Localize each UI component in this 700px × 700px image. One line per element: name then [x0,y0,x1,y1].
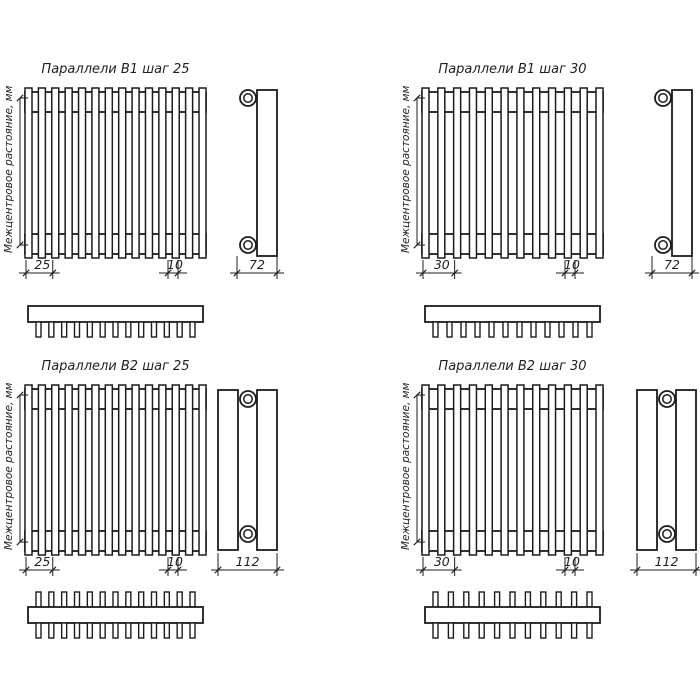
drawing-sheet: 25107230107225101123010112 Параллели B1 … [0,0,700,700]
center-distance-label: Межцентровое растояние, мм [2,93,16,253]
step-dimension: 25 [19,554,60,576]
center-distance-label: Межцентровое растояние, мм [2,390,16,550]
front-view [25,88,206,258]
depth-dimension-value: 72 [249,257,265,272]
tube-width-dimension: 10 [556,257,584,279]
quadrant-title-b2-30: Параллели B2 шаг 30 [422,359,603,374]
step-dimension-value: 25 [34,554,50,569]
depth-dimension: 112 [630,553,700,576]
side-view [240,90,277,256]
side-view [218,390,277,550]
quadrant-b2-step-25: 2510112 [17,385,284,638]
depth-dimension-value: 112 [236,554,260,569]
depth-dimension: 112 [211,553,284,576]
tube-width-dimension: 10 [556,554,584,576]
step-dimension: 30 [416,554,462,576]
center-distance-label: Межцентровое растояние, мм [399,93,413,253]
quadrant-b1-step-30: 301072 [414,88,699,337]
step-dimension-value: 25 [34,257,50,272]
quadrant-title-b1-25: Параллели B1 шаг 25 [25,62,206,77]
depth-dimension: 72 [230,256,284,279]
depth-dimension: 72 [645,256,699,279]
plan-view [28,592,203,638]
tube-width-dimension-value: 10 [564,554,580,569]
front-view [422,385,603,555]
quadrant-b2-step-30: 3010112 [414,385,700,638]
front-view [422,88,603,258]
quadrant-title-b2-25: Параллели B2 шаг 25 [25,359,206,374]
step-dimension: 25 [19,257,60,279]
step-dimension-value: 30 [434,257,450,272]
side-view [655,90,692,256]
depth-dimension-value: 112 [655,554,679,569]
radiator-technical-drawing: 25107230107225101123010112 [0,0,700,700]
step-dimension: 30 [416,257,462,279]
plan-view [425,592,600,638]
quadrant-b1-step-25: 251072 [17,88,284,337]
tube-width-dimension: 10 [159,554,187,576]
center-distance-label: Межцентровое растояние, мм [399,390,413,550]
tube-width-dimension-value: 10 [167,554,183,569]
tube-width-dimension: 10 [159,257,187,279]
plan-view [28,306,203,337]
depth-dimension-value: 72 [664,257,680,272]
tube-width-dimension-value: 10 [167,257,183,272]
front-view [25,385,206,555]
side-view [637,390,696,550]
plan-view [425,306,600,337]
step-dimension-value: 30 [434,554,450,569]
tube-width-dimension-value: 10 [564,257,580,272]
quadrant-title-b1-30: Параллели B1 шаг 30 [422,62,603,77]
